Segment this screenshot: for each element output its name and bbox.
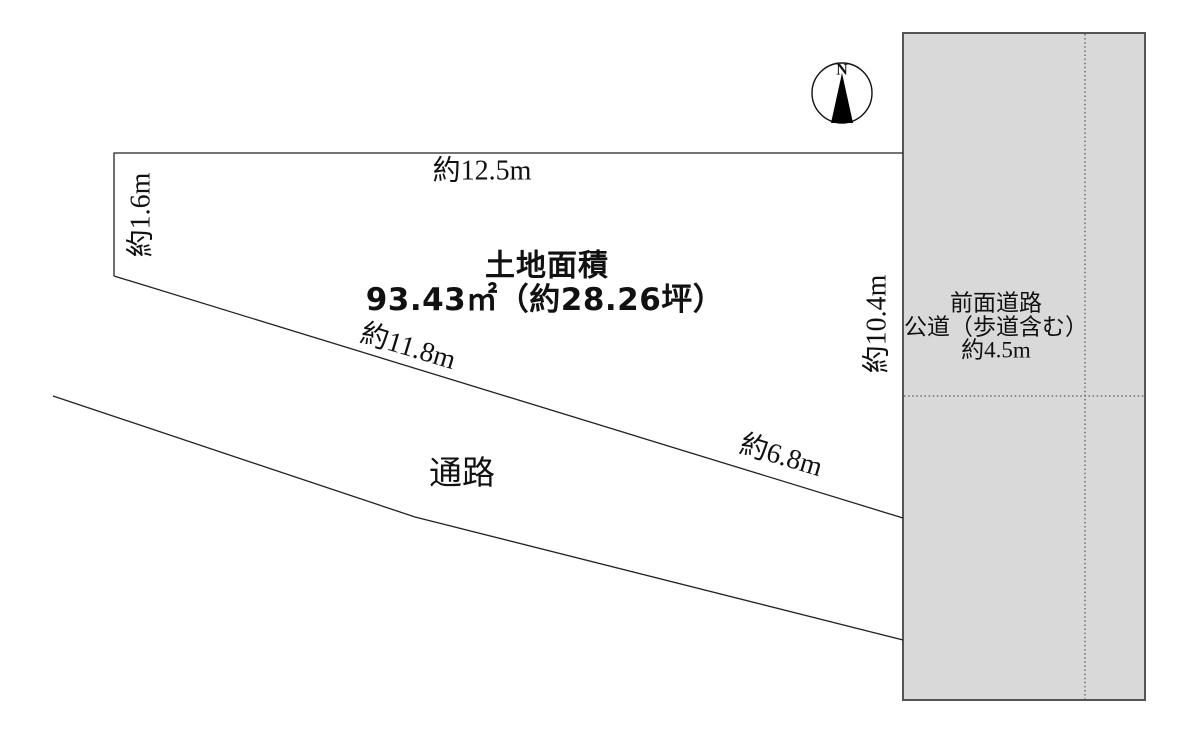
- front-road-label-line3: 約4.5m: [961, 338, 1031, 363]
- diagram-svg: N 約12.5m 約1.6m 約10.4m 約11.8m 約6.8m 土地面積 …: [0, 0, 1200, 733]
- compass-north-label: N: [836, 62, 848, 79]
- front-road-label-line1: 前面道路: [950, 291, 1042, 316]
- dimension-bottom-left: 約11.8m: [357, 317, 460, 376]
- land-area-value: 93.43㎡（約28.26坪）: [366, 282, 725, 318]
- passage-south-boundary: [53, 396, 903, 640]
- front-road-area: [903, 33, 1145, 700]
- land-plot-diagram: N 約12.5m 約1.6m 約10.4m 約11.8m 約6.8m 土地面積 …: [0, 0, 1200, 733]
- dimension-right: 約10.4m: [861, 274, 893, 373]
- land-area-title: 土地面積: [485, 249, 609, 284]
- dimension-bottom-right: 約6.8m: [736, 428, 827, 483]
- passage-label: 通路: [429, 455, 495, 492]
- dimension-left: 約1.6m: [125, 172, 157, 257]
- compass: N: [812, 62, 872, 124]
- dimension-top: 約12.5m: [433, 155, 532, 187]
- front-road-label-line2: 公道（歩道含む）: [904, 315, 1088, 340]
